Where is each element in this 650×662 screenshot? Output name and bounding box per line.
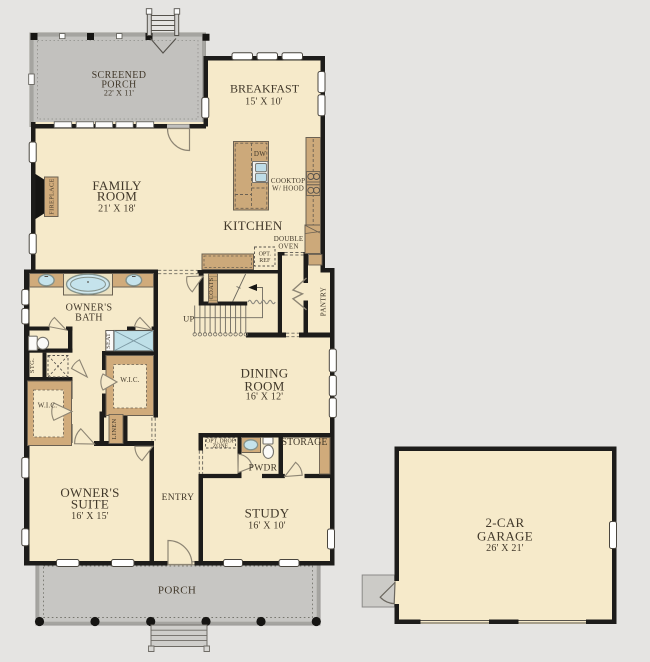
svg-text:16' X 10': 16' X 10' [248, 521, 286, 532]
svg-text:BREAKFAST: BREAKFAST [230, 82, 300, 96]
svg-text:OVEN: OVEN [278, 243, 298, 251]
svg-text:22' X 11': 22' X 11' [104, 89, 135, 98]
svg-text:W.I.C.: W.I.C. [120, 376, 139, 384]
svg-text:STG.: STG. [29, 358, 36, 373]
svg-text:FIREPLACE: FIREPLACE [49, 178, 56, 214]
svg-text:REF: REF [259, 258, 271, 264]
svg-text:COATS: COATS [208, 277, 215, 299]
svg-text:ENTRY: ENTRY [162, 493, 195, 503]
svg-text:SEAT: SEAT [105, 333, 112, 349]
svg-text:W.I.C.: W.I.C. [38, 402, 57, 410]
svg-text:STUDY: STUDY [245, 506, 290, 521]
svg-text:OPT.: OPT. [259, 252, 272, 258]
svg-text:UP: UP [183, 314, 194, 324]
svg-text:LINEN: LINEN [111, 419, 118, 440]
svg-text:STORAGE: STORAGE [282, 437, 328, 448]
svg-text:15' X 10': 15' X 10' [245, 97, 283, 108]
svg-text:16' X 12': 16' X 12' [246, 392, 284, 403]
svg-text:W/ HOOD: W/ HOOD [272, 185, 304, 193]
svg-text:ROOM: ROOM [97, 189, 137, 204]
svg-text:GARAGE: GARAGE [477, 529, 533, 544]
svg-text:16' X 15': 16' X 15' [71, 511, 109, 522]
svg-text:SUITE: SUITE [71, 497, 109, 512]
svg-text:BATH: BATH [75, 313, 103, 324]
svg-text:DW: DW [254, 150, 266, 158]
svg-text:ZONE: ZONE [213, 444, 229, 450]
svg-text:PANTRY: PANTRY [320, 287, 328, 316]
svg-text:PWDR: PWDR [249, 464, 278, 474]
svg-text:21' X 18': 21' X 18' [98, 204, 136, 215]
svg-text:PORCH: PORCH [158, 585, 196, 597]
svg-text:KITCHEN: KITCHEN [223, 218, 282, 233]
svg-text:26' X 21': 26' X 21' [486, 543, 524, 554]
